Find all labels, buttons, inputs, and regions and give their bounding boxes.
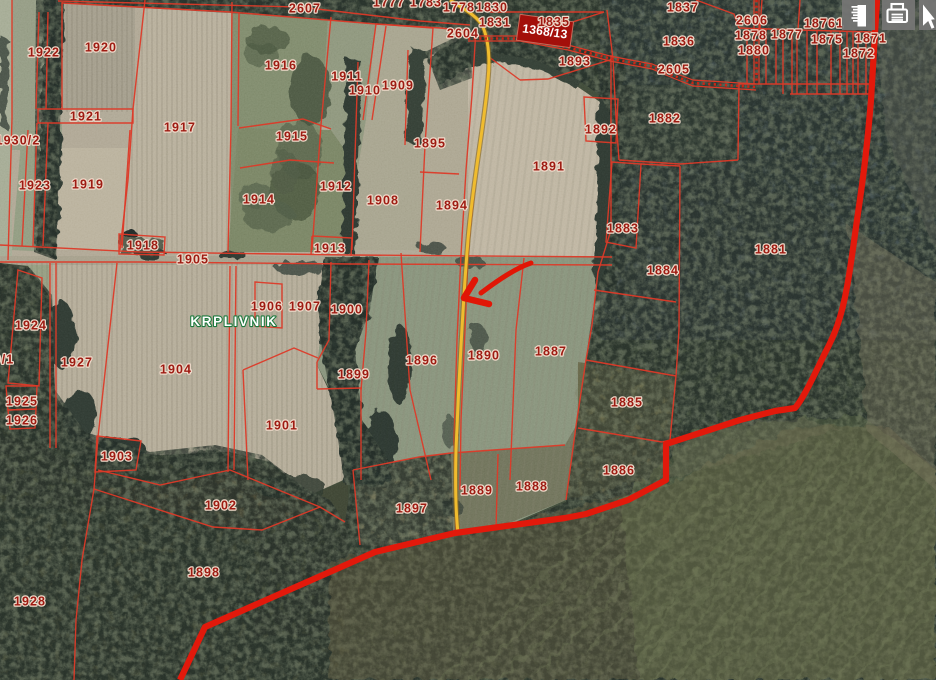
svg-text:1835: 1835 xyxy=(538,15,570,29)
svg-text:1884: 1884 xyxy=(647,264,679,278)
svg-text:1891: 1891 xyxy=(533,160,565,174)
svg-text:2604: 2604 xyxy=(447,27,479,41)
svg-text:1930/2: 1930/2 xyxy=(0,134,40,148)
svg-text:1893: 1893 xyxy=(559,55,591,69)
svg-text:1881: 1881 xyxy=(755,243,787,257)
svg-text:1923: 1923 xyxy=(19,179,51,193)
svg-text:1885: 1885 xyxy=(611,396,643,410)
svg-text:2606: 2606 xyxy=(736,14,768,28)
svg-text:1899: 1899 xyxy=(338,368,370,382)
svg-text:1919: 1919 xyxy=(72,178,104,192)
svg-text:1892: 1892 xyxy=(585,123,617,137)
svg-text:1895: 1895 xyxy=(414,137,446,151)
svg-text:1905: 1905 xyxy=(177,253,209,267)
svg-text:1902: 1902 xyxy=(205,499,237,513)
svg-text:1922: 1922 xyxy=(28,46,60,60)
svg-text:1927: 1927 xyxy=(61,356,93,370)
svg-text:1913: 1913 xyxy=(314,242,346,256)
svg-text:1926: 1926 xyxy=(6,414,38,428)
svg-text:1916: 1916 xyxy=(265,59,297,73)
svg-text:1915: 1915 xyxy=(276,130,308,144)
svg-text:1912: 1912 xyxy=(320,180,352,194)
svg-text:2605: 2605 xyxy=(658,63,690,77)
svg-text:1783: 1783 xyxy=(410,0,442,10)
svg-text:1924: 1924 xyxy=(15,319,47,333)
svg-text:1928: 1928 xyxy=(14,595,46,609)
svg-text:1925: 1925 xyxy=(6,395,38,409)
svg-text:1890: 1890 xyxy=(468,349,500,363)
svg-text:1878: 1878 xyxy=(735,29,767,43)
svg-text:1882: 1882 xyxy=(649,112,681,126)
svg-text:1917: 1917 xyxy=(164,121,196,135)
svg-text:1903: 1903 xyxy=(101,450,133,464)
svg-text:1918: 1918 xyxy=(127,239,159,253)
svg-text:1904: 1904 xyxy=(160,363,192,377)
svg-text:1831: 1831 xyxy=(479,16,511,30)
svg-text:1907: 1907 xyxy=(289,300,321,314)
svg-text:1830: 1830 xyxy=(476,1,508,15)
svg-text:1872: 1872 xyxy=(843,47,875,61)
svg-text:1914: 1914 xyxy=(243,193,275,207)
svg-text:1877: 1877 xyxy=(771,28,803,42)
svg-text:1909: 1909 xyxy=(382,79,414,93)
svg-text:1901: 1901 xyxy=(266,419,298,433)
svg-text:1896: 1896 xyxy=(406,354,438,368)
svg-text:1886: 1886 xyxy=(603,464,635,478)
svg-text:KRPLIVNIK: KRPLIVNIK xyxy=(190,314,277,329)
svg-text:2607: 2607 xyxy=(289,2,321,16)
svg-text:1897: 1897 xyxy=(396,502,428,516)
svg-text:1837: 1837 xyxy=(667,1,699,15)
svg-text:0/1: 0/1 xyxy=(0,353,14,367)
svg-text:1900: 1900 xyxy=(331,303,363,317)
svg-text:1887: 1887 xyxy=(535,345,567,359)
svg-text:1898: 1898 xyxy=(188,566,220,580)
svg-text:1920: 1920 xyxy=(85,41,117,55)
svg-text:1921: 1921 xyxy=(70,110,102,124)
svg-text:1836: 1836 xyxy=(663,35,695,49)
svg-text:1911: 1911 xyxy=(331,70,363,84)
svg-text:1777: 1777 xyxy=(373,0,405,10)
svg-text:18761: 18761 xyxy=(804,17,844,31)
svg-text:1910: 1910 xyxy=(349,84,381,98)
svg-text:1778: 1778 xyxy=(443,1,475,15)
svg-text:1871: 1871 xyxy=(855,32,887,46)
svg-text:1889: 1889 xyxy=(461,484,493,498)
svg-text:1908: 1908 xyxy=(367,194,399,208)
svg-text:1875: 1875 xyxy=(811,33,843,47)
svg-text:1906: 1906 xyxy=(251,300,283,314)
svg-text:1894: 1894 xyxy=(436,199,468,213)
svg-text:1880: 1880 xyxy=(738,44,770,58)
svg-text:1883: 1883 xyxy=(607,222,639,236)
svg-text:1888: 1888 xyxy=(516,480,548,494)
